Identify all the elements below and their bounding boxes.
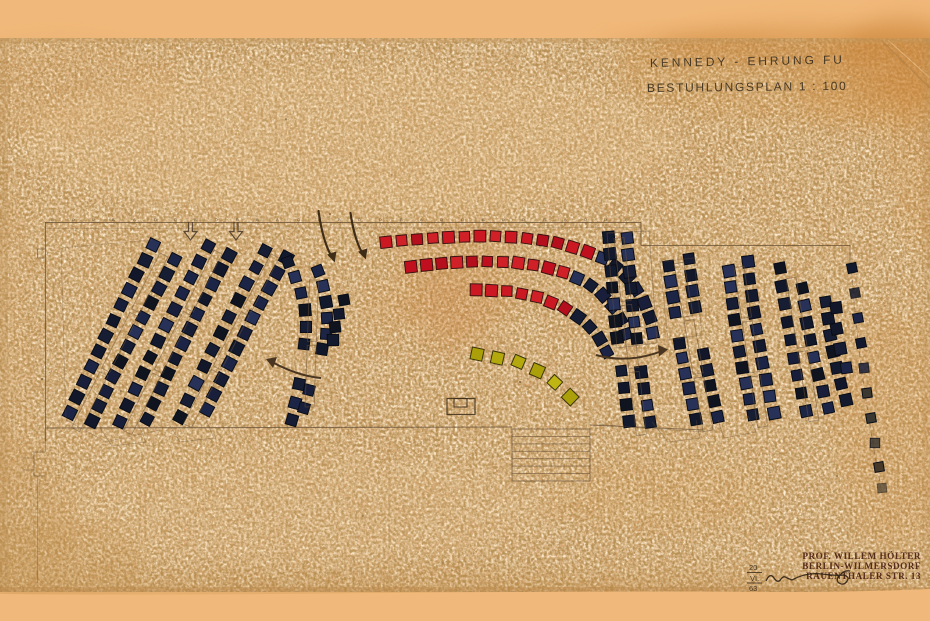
svg-text:D: D xyxy=(584,217,587,222)
svg-text:D: D xyxy=(440,217,443,222)
svg-text:A: A xyxy=(276,217,279,222)
svg-text:B: B xyxy=(482,217,485,222)
svg-text:63: 63 xyxy=(749,584,757,593)
svg-text:D: D xyxy=(604,217,607,222)
svg-text:D: D xyxy=(215,217,218,222)
svg-text:B: B xyxy=(51,217,54,222)
svg-text:D: D xyxy=(174,217,177,222)
svg-text:D: D xyxy=(358,217,361,222)
svg-text:D: D xyxy=(92,217,95,222)
svg-text:A: A xyxy=(564,217,567,222)
svg-text:A: A xyxy=(420,217,423,222)
svg-text:D: D xyxy=(502,217,505,222)
svg-text:RAUENTHALER STR. 13: RAUENTHALER STR. 13 xyxy=(806,571,921,581)
svg-text:A: A xyxy=(133,217,136,222)
svg-text:BERLIN-WILMERSDORF: BERLIN-WILMERSDORF xyxy=(802,561,921,571)
svg-text:D: D xyxy=(522,217,525,222)
svg-text:B: B xyxy=(338,217,341,222)
svg-text:B: B xyxy=(400,217,403,222)
svg-text:D: D xyxy=(72,217,75,222)
svg-text:B: B xyxy=(194,217,197,222)
svg-text:BESTUHLUNGSPLAN 1 : 100: BESTUHLUNGSPLAN 1 : 100 xyxy=(647,79,848,95)
svg-text:D: D xyxy=(236,217,239,222)
svg-text:B: B xyxy=(543,217,546,222)
svg-text:D: D xyxy=(461,217,464,222)
svg-text:D: D xyxy=(379,217,382,222)
svg-text:B: B xyxy=(112,217,115,222)
svg-text:B: B xyxy=(256,217,259,222)
svg-text:D: D xyxy=(154,217,157,222)
svg-text:VI.: VI. xyxy=(750,574,759,583)
svg-text:20: 20 xyxy=(749,563,757,572)
svg-text:PROF. WILLEM HÖLTER: PROF. WILLEM HÖLTER xyxy=(802,551,921,561)
svg-text:D: D xyxy=(297,217,300,222)
svg-text:B: B xyxy=(625,217,628,222)
